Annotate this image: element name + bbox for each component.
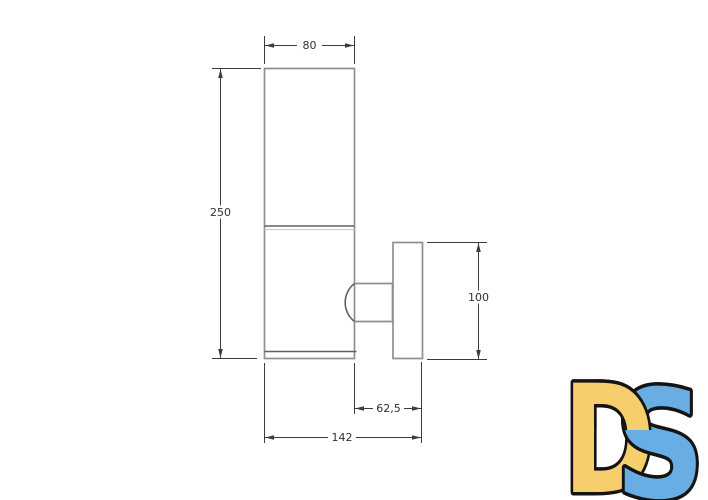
arrowhead-left xyxy=(265,435,274,440)
dimension-body-width: 80 xyxy=(265,36,355,64)
luminaire-outline xyxy=(265,69,423,359)
arrowhead-left xyxy=(265,43,274,48)
arrowhead-top xyxy=(218,69,223,78)
dimension-drawing: 80 250 100 xyxy=(0,0,708,500)
arrowhead-left xyxy=(355,406,364,411)
arrowhead-right xyxy=(412,406,421,411)
lamp-body-outline xyxy=(265,69,355,359)
arrowhead-top xyxy=(476,243,481,252)
dimension-label-body-width: 80 xyxy=(303,39,317,52)
arrowhead-right xyxy=(412,435,421,440)
arrowhead-bottom xyxy=(218,349,223,358)
ds-logo: S D S D xyxy=(563,354,705,500)
dimension-label-overall-depth: 142 xyxy=(332,431,353,444)
dimension-body-height: 250 xyxy=(206,69,261,359)
wall-plate-outline xyxy=(393,243,423,359)
dimension-drawing-page: 80 250 100 xyxy=(0,0,708,500)
dimension-bracket-depth: 62,5 xyxy=(355,362,422,443)
arm-joint-arc xyxy=(345,284,354,322)
arrowhead-bottom xyxy=(476,350,481,359)
dimension-label-body-height: 250 xyxy=(210,206,231,219)
dimension-bracket-height: 100 xyxy=(427,243,493,360)
dimension-label-bracket-depth: 62,5 xyxy=(376,402,401,415)
arrowhead-right xyxy=(345,43,354,48)
arm-outline xyxy=(355,284,393,322)
dimension-label-bracket-height: 100 xyxy=(468,291,489,304)
